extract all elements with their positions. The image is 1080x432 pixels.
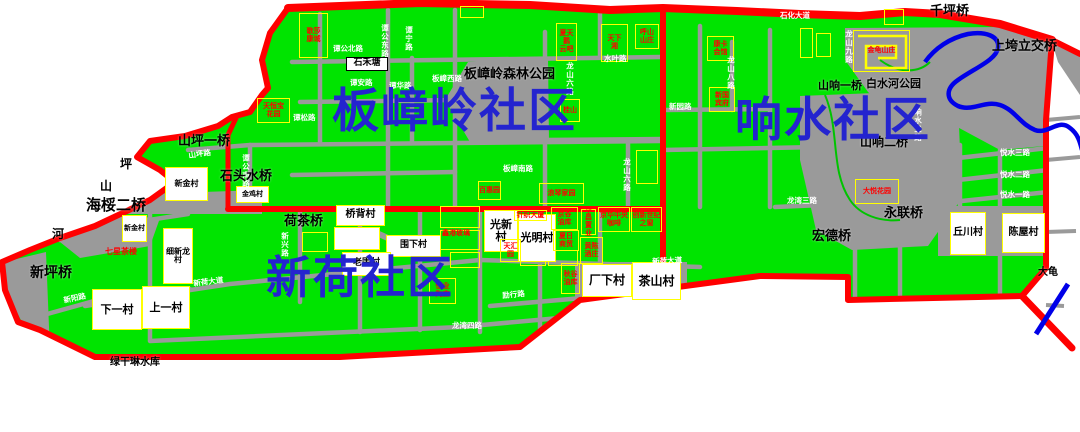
village-box: 金鸡村 <box>236 186 269 203</box>
village-label: 石禾塘 <box>353 59 380 68</box>
facility-label: 京谷 油库 <box>551 207 578 230</box>
village-box: 石禾塘 <box>346 57 388 71</box>
village-label: 茶山村 <box>638 275 674 288</box>
bridge-label: 海桵二桥 <box>86 198 146 213</box>
facility-label: 京华中央 咖啡 <box>598 207 630 232</box>
parcel-box <box>636 150 658 184</box>
facility-label: 百惠园 <box>478 181 501 200</box>
parcel-box <box>302 232 328 252</box>
village-box: 下一村 <box>92 289 142 330</box>
bridge-label: 河 <box>52 228 64 240</box>
village-label: 厂下村 <box>589 274 625 287</box>
village-label: 新金村 <box>124 225 145 232</box>
facility-label: 大悦花园 <box>855 179 899 204</box>
bridge-label: 山 <box>100 180 112 192</box>
parcel-box <box>884 9 904 25</box>
bridge-label: 上垮立交桥 <box>992 40 1057 53</box>
bridge-label: 宏德桥 <box>812 230 851 243</box>
village-label: 上一村 <box>150 302 183 314</box>
village-box: 新金村 <box>122 215 147 242</box>
bridge-label: 石头水桥 <box>220 170 272 183</box>
road-label: 龙湾三路 <box>787 197 817 205</box>
facility-label: 夏日 商贸 <box>553 230 579 251</box>
road-label: 谭公东路 <box>381 24 389 58</box>
facility-label: 创新世纪 之窗 <box>631 207 662 232</box>
road-label: 悦水二路 <box>1000 171 1030 179</box>
road-label: 板嶂西路 <box>432 75 462 83</box>
village-box: 新金村 <box>165 167 208 201</box>
road-label: 谭松路 <box>293 114 316 122</box>
facility-label: 浪琴家园 <box>539 183 584 204</box>
road-label: 石化大道 <box>780 12 810 20</box>
parcel-box <box>440 206 480 228</box>
community-label: 板嶂岭社区 <box>332 88 577 135</box>
community-label: 新荷社区 <box>266 255 454 300</box>
village-box: 细新龙村 <box>163 228 193 284</box>
parcel-box <box>450 252 480 268</box>
village-box: 陈屋村 <box>1002 213 1045 253</box>
road-label: 悦水三路 <box>1000 149 1030 157</box>
road-label: 水叶路 <box>604 55 627 63</box>
bridge-label: 千坪桥 <box>930 5 969 18</box>
facility-label: 天恒宝 花园 <box>257 98 290 123</box>
village-box: 上一村 <box>142 286 190 329</box>
bridge-label: 板嶂岭森林公园 <box>464 68 555 81</box>
road-label: 悦水一路 <box>1000 191 1030 199</box>
parcel-box <box>460 6 484 18</box>
village-label: 新金村 <box>175 180 199 188</box>
facility-label: 新国 宾府 <box>709 87 735 112</box>
facility-label: 针织大厦 <box>514 210 547 221</box>
road-label: 龙山六路 <box>623 158 631 192</box>
facility-label: 呼山 山庄 <box>635 24 659 49</box>
road-label: 板嶂南路 <box>503 165 533 173</box>
bridge-label: 大龟 <box>1038 268 1058 278</box>
facility-label: 秋谷 油库 <box>561 263 580 294</box>
road-label: 龙山八路 <box>727 56 735 90</box>
road-label: 新园路 <box>669 103 692 111</box>
village-box <box>334 227 380 250</box>
bridge-label: 山响一桥 <box>818 80 862 91</box>
village-label: 陈屋村 <box>1009 228 1039 239</box>
village-box: 茶山村 <box>632 262 681 300</box>
road-label: 龙湾四路 <box>452 322 482 330</box>
facility-label: 夏天鹅 云吧 <box>556 23 577 61</box>
village-label: 金鸡村 <box>242 191 263 198</box>
red-annotation: 鑫港玻璃 <box>442 230 470 237</box>
bridge-label: 永联桥 <box>884 207 923 220</box>
village-box: 桥背村 <box>336 205 385 226</box>
village-label: 细新龙村 <box>164 248 192 265</box>
road-label: 新荷大道 <box>652 256 682 265</box>
red-annotation: 七星茶楼 <box>105 248 137 256</box>
bridge-label: 荷茶桥 <box>284 215 323 228</box>
facility-label: 歌莎 康城 <box>299 13 328 58</box>
parcel-box <box>816 33 831 57</box>
road-label: 龙山九路 <box>845 30 853 64</box>
bridge-label: 坪 <box>120 158 132 170</box>
village-label: 下一村 <box>101 304 134 316</box>
road-label: 励行路 <box>502 290 525 299</box>
facility-label: 华昌 置业 <box>581 209 596 235</box>
village-label: 围下村 <box>400 241 427 250</box>
facility-label: 天汇 园 <box>500 239 521 262</box>
village-box: 厂下村 <box>582 264 632 297</box>
village-label: 桥背村 <box>346 210 376 221</box>
parcel-box <box>800 28 813 58</box>
road-label: 谭公北路 <box>333 45 363 53</box>
community-label: 响水社区 <box>735 97 931 144</box>
bridge-label: 山坪一桥 <box>178 135 230 148</box>
bridge-label: 白水河公园 <box>866 78 921 89</box>
bridge-label: 绿干琳水库 <box>110 358 160 368</box>
village-label: 丘川村 <box>953 228 983 239</box>
village-label: 光明村 <box>521 232 554 244</box>
facility-label: 黄陈 酒庄 <box>580 237 603 264</box>
road-label: 谭宁路 <box>405 26 413 52</box>
facility-label: 金龟山庄 <box>853 30 910 72</box>
map-canvas: 石禾塘新金村金鸡村新金村细新龙村下一村上一村桥背村围下村老围村光新村光明村厂下村… <box>0 0 1080 432</box>
bridge-label: 新坪桥 <box>30 266 72 280</box>
village-box: 丘川村 <box>950 212 986 255</box>
